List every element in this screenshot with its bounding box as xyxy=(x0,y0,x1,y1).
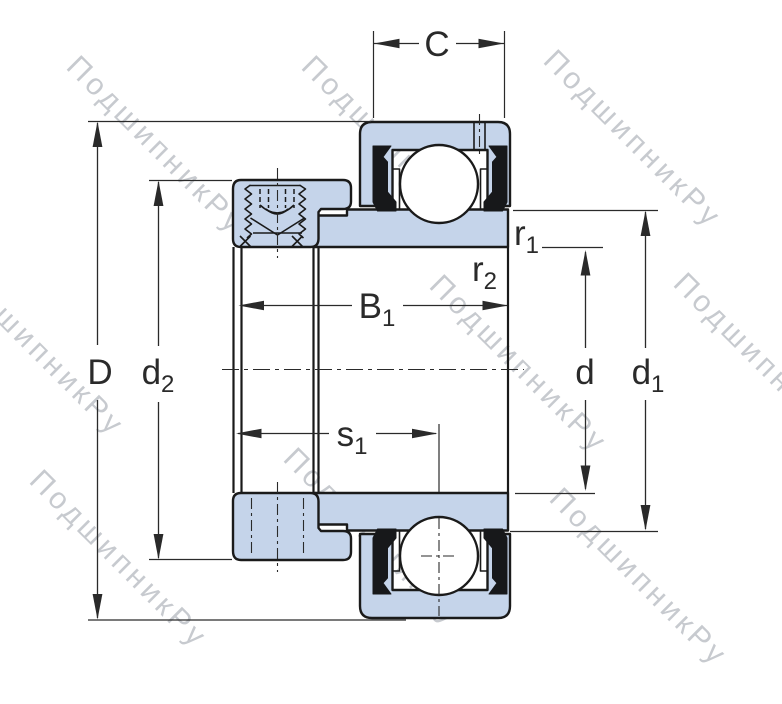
bearing-cross-section-drawing: ПодшипникРу ПодшипникРу ПодшипникРу Подш… xyxy=(0,0,782,704)
extension-line xyxy=(149,181,232,560)
arrowhead xyxy=(641,505,651,531)
arrowhead xyxy=(154,181,164,207)
dimension-label-d1: d1 xyxy=(632,353,665,398)
bearing-geometry xyxy=(222,114,524,618)
arrowhead xyxy=(236,429,262,439)
bearing-drawing-page: ПодшипникРу ПодшипникРу ПодшипникРу Подш… xyxy=(0,0,782,704)
inner-ring-bottom-section xyxy=(313,493,508,531)
watermark-text: ПодшипникРу xyxy=(60,50,251,241)
dimension-label-d2: d2 xyxy=(142,353,175,398)
arrowhead xyxy=(479,39,505,48)
watermark-text: ПодшипникРу xyxy=(543,482,734,673)
dimension-label-s1: s1 xyxy=(337,415,368,460)
arrowhead xyxy=(641,211,651,237)
dimension-label-D: D xyxy=(87,353,112,392)
arrowhead xyxy=(154,534,164,560)
watermark-text: ПодшипникРу xyxy=(667,267,782,458)
watermark-text: ПодшипникРу xyxy=(537,44,728,235)
dimension-label-d: d xyxy=(575,353,594,392)
inner-ring-top-section xyxy=(313,210,508,248)
arrowhead xyxy=(374,39,400,48)
arrowhead xyxy=(93,594,103,620)
arrowhead xyxy=(483,301,509,311)
arrowhead xyxy=(412,429,438,439)
arrowhead xyxy=(581,250,591,276)
dimension-label-r2: r2 xyxy=(472,250,497,295)
dimension-label-B1: B1 xyxy=(359,287,396,332)
dimension-d2: d2 xyxy=(142,181,232,560)
watermark-text: ПодшипникРу xyxy=(0,252,131,443)
dimension-label-C: C xyxy=(424,25,449,64)
dimension-label-r1: r1 xyxy=(514,214,539,259)
dimension-C: C xyxy=(374,25,505,118)
arrowhead xyxy=(581,466,591,492)
arrowhead xyxy=(93,122,103,148)
ball-top xyxy=(400,145,478,223)
